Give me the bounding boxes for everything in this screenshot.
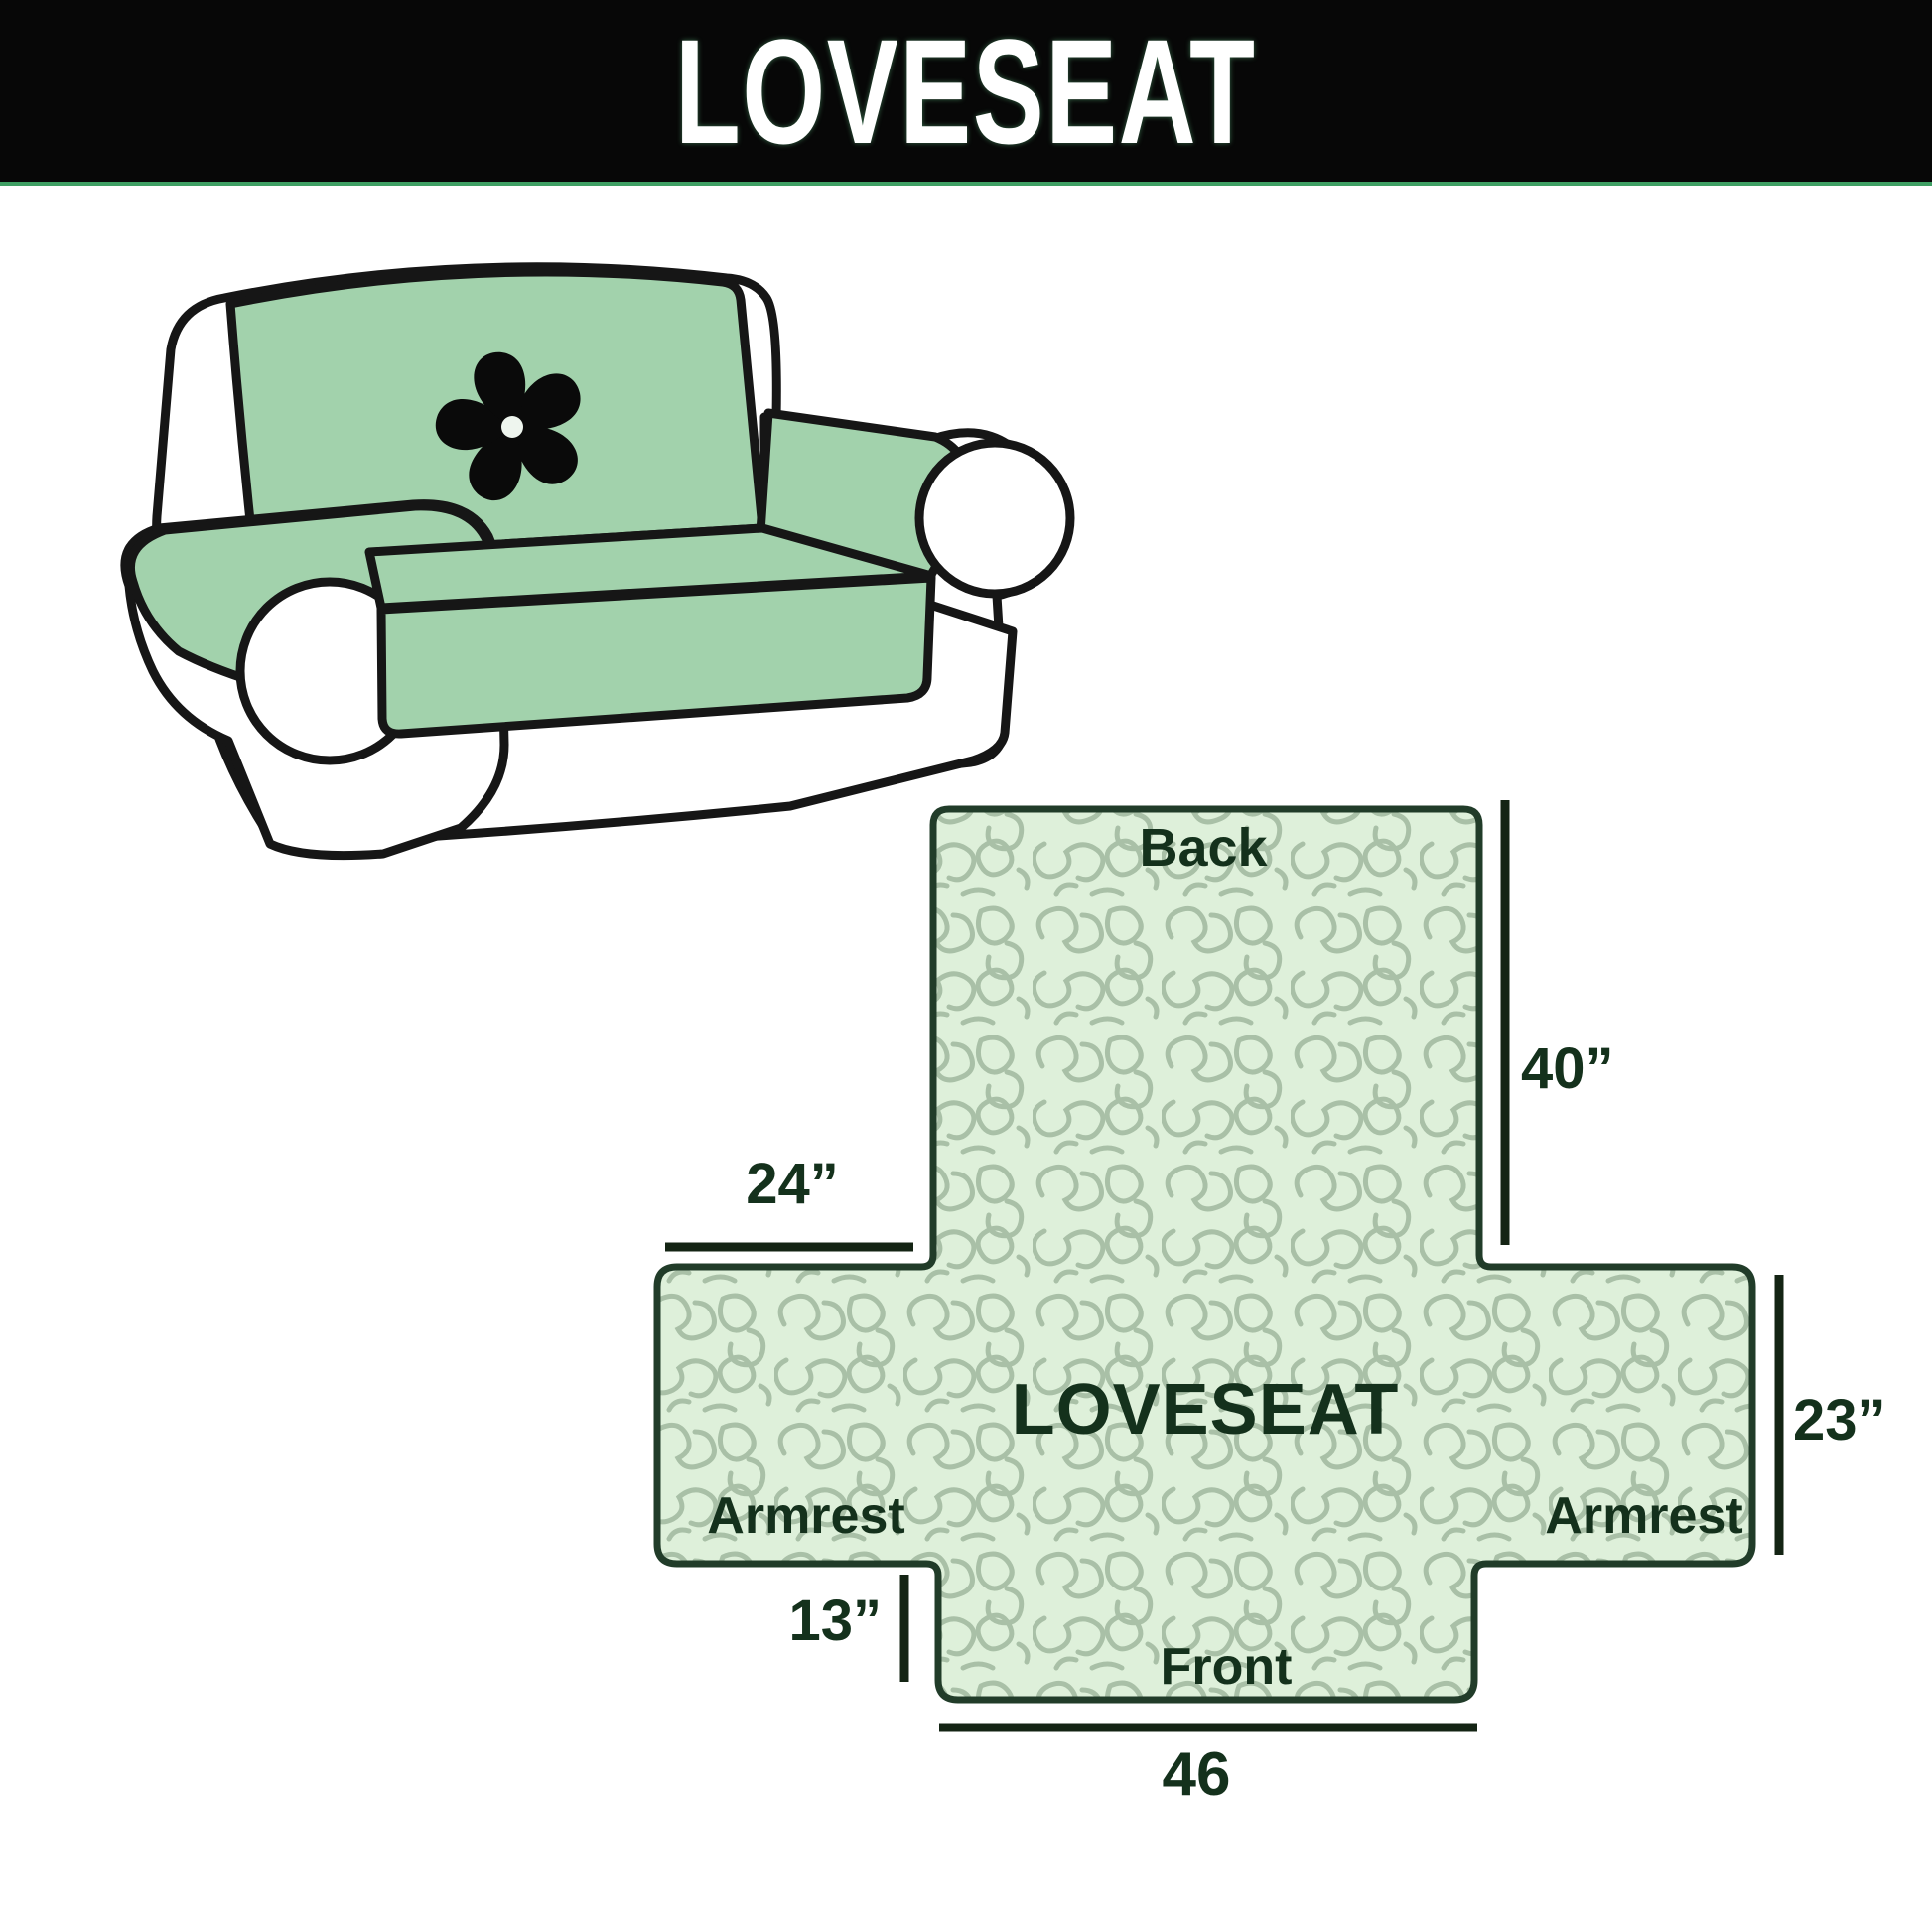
cover-dimension-diagram: Back LOVESEAT Armrest Armrest Front 40” … bbox=[596, 774, 1932, 1853]
back-height-value: 40” bbox=[1521, 1036, 1614, 1101]
page-title: LOVESEAT bbox=[675, 17, 1257, 166]
cover-shape bbox=[657, 809, 1752, 1700]
front-width-value: 46 bbox=[1163, 1740, 1231, 1809]
back-top-width-value: 24” bbox=[746, 1152, 839, 1216]
armrest-left-label: Armrest bbox=[707, 1487, 904, 1545]
cover-center-label: LOVESEAT bbox=[1012, 1370, 1400, 1449]
armrest-height-value: 23” bbox=[1793, 1388, 1886, 1452]
sofa-right-arm-roll bbox=[919, 443, 1070, 594]
armrest-right-label: Armrest bbox=[1545, 1487, 1742, 1545]
back-panel-label: Back bbox=[1139, 818, 1268, 878]
front-panel-label: Front bbox=[1161, 1638, 1293, 1696]
page: LOVESEAT bbox=[0, 0, 1932, 1932]
front-drop-value: 13” bbox=[788, 1588, 882, 1653]
header-bar: LOVESEAT bbox=[0, 0, 1932, 186]
